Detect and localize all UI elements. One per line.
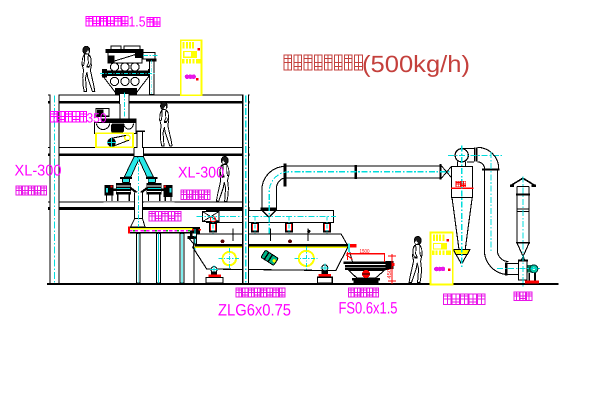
svg-text:1.5: 1.5 [129,15,146,31]
svg-text:350: 350 [87,111,107,126]
svg-text:FS0.6x1.5: FS0.6x1.5 [339,299,398,317]
svg-text:XL-300: XL-300 [178,165,224,182]
svg-text:ZLG6x0.75: ZLG6x0.75 [218,301,291,319]
svg-text:XL-300: XL-300 [15,162,62,179]
svg-text:(500kg/h): (500kg/h) [362,51,470,77]
svg-text:1500: 1500 [360,249,370,255]
svg-text:450: 450 [387,269,393,279]
